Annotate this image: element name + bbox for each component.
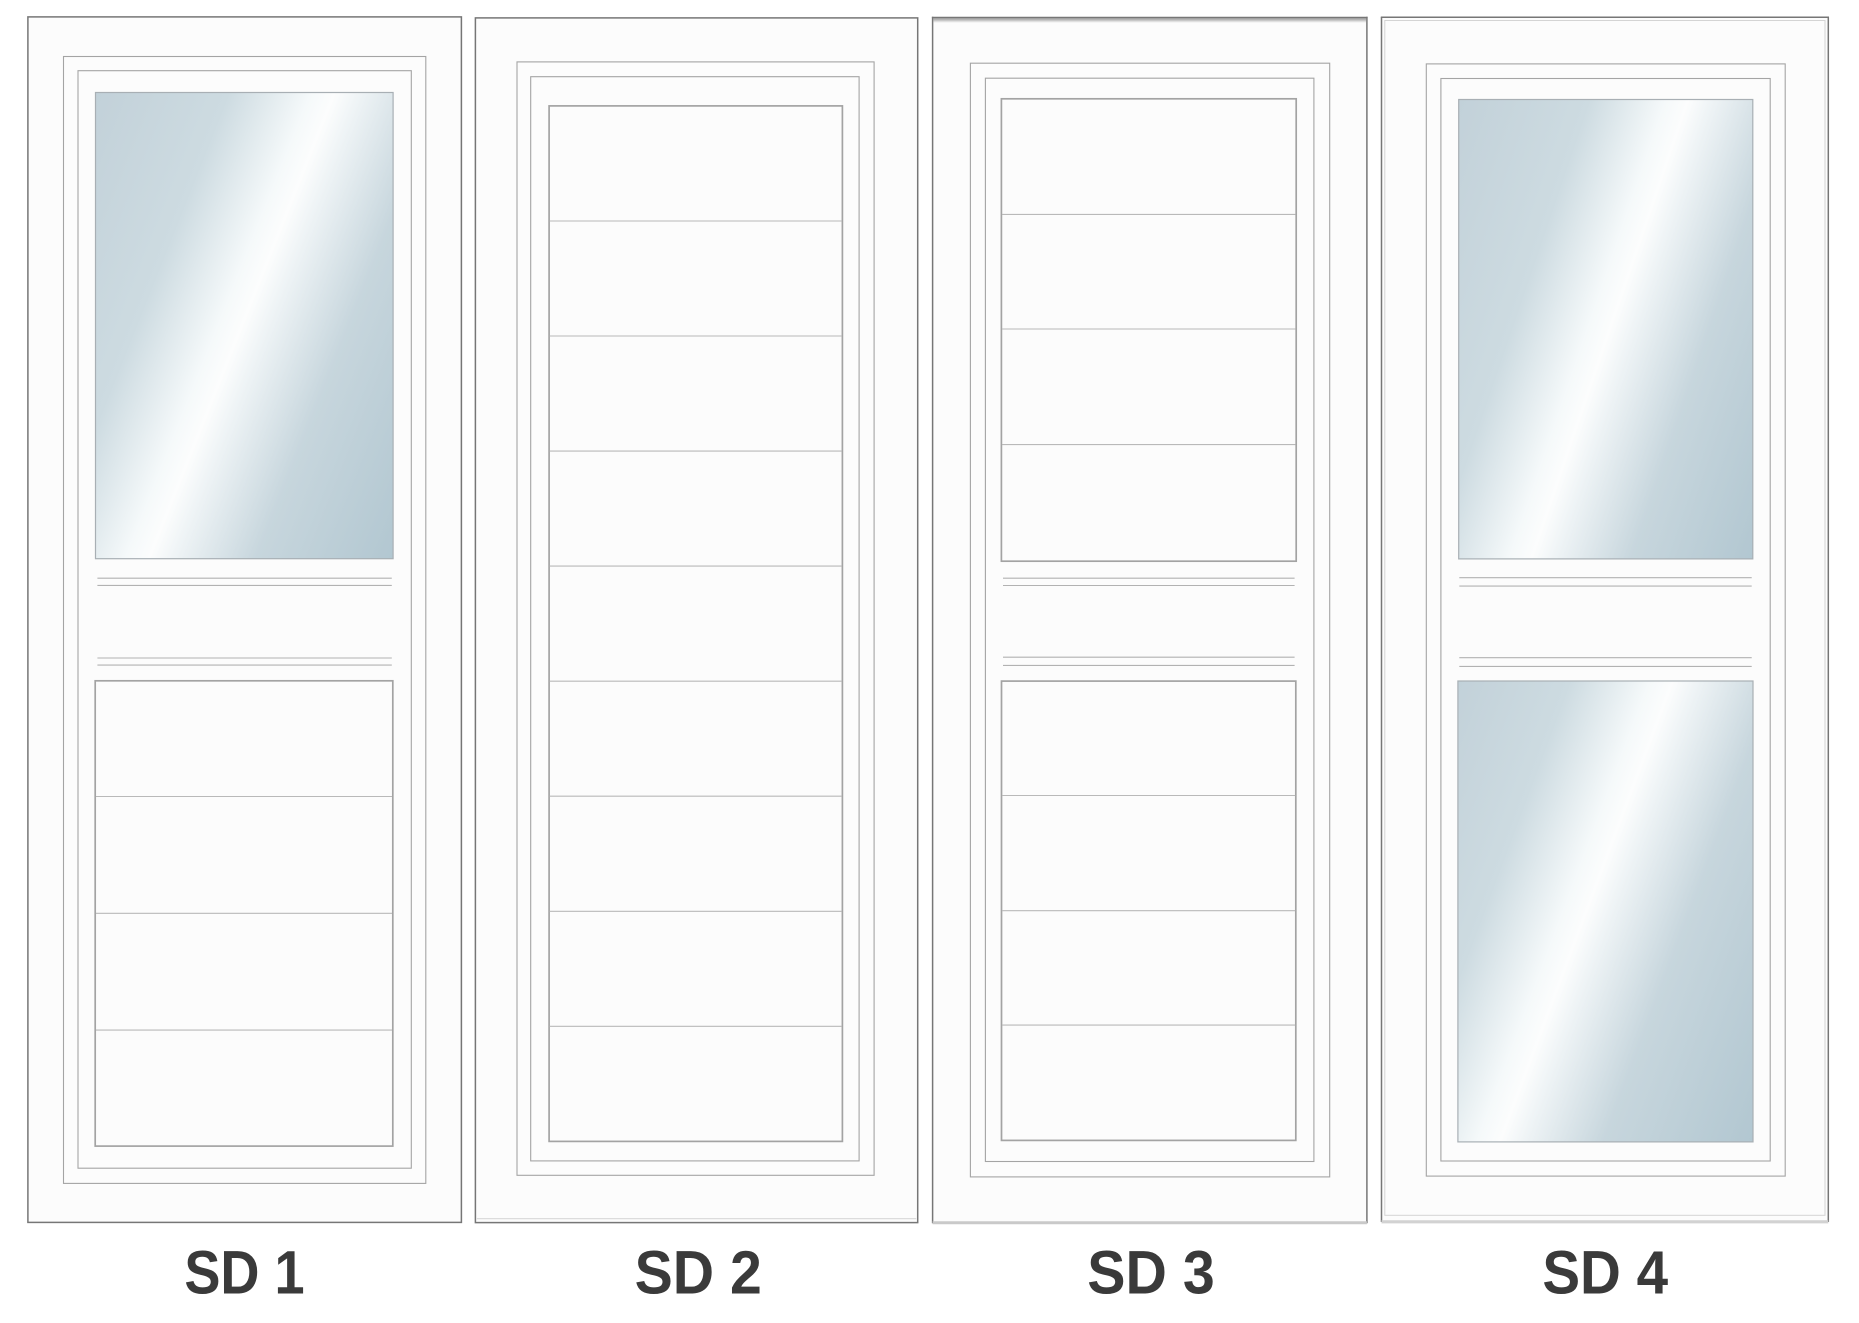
svg-text:SD 2: SD 2 (635, 1239, 762, 1308)
svg-text:SD 3: SD 3 (1087, 1239, 1214, 1308)
svg-text:SD 4: SD 4 (1542, 1239, 1668, 1308)
svg-text:SD 1: SD 1 (184, 1239, 304, 1308)
